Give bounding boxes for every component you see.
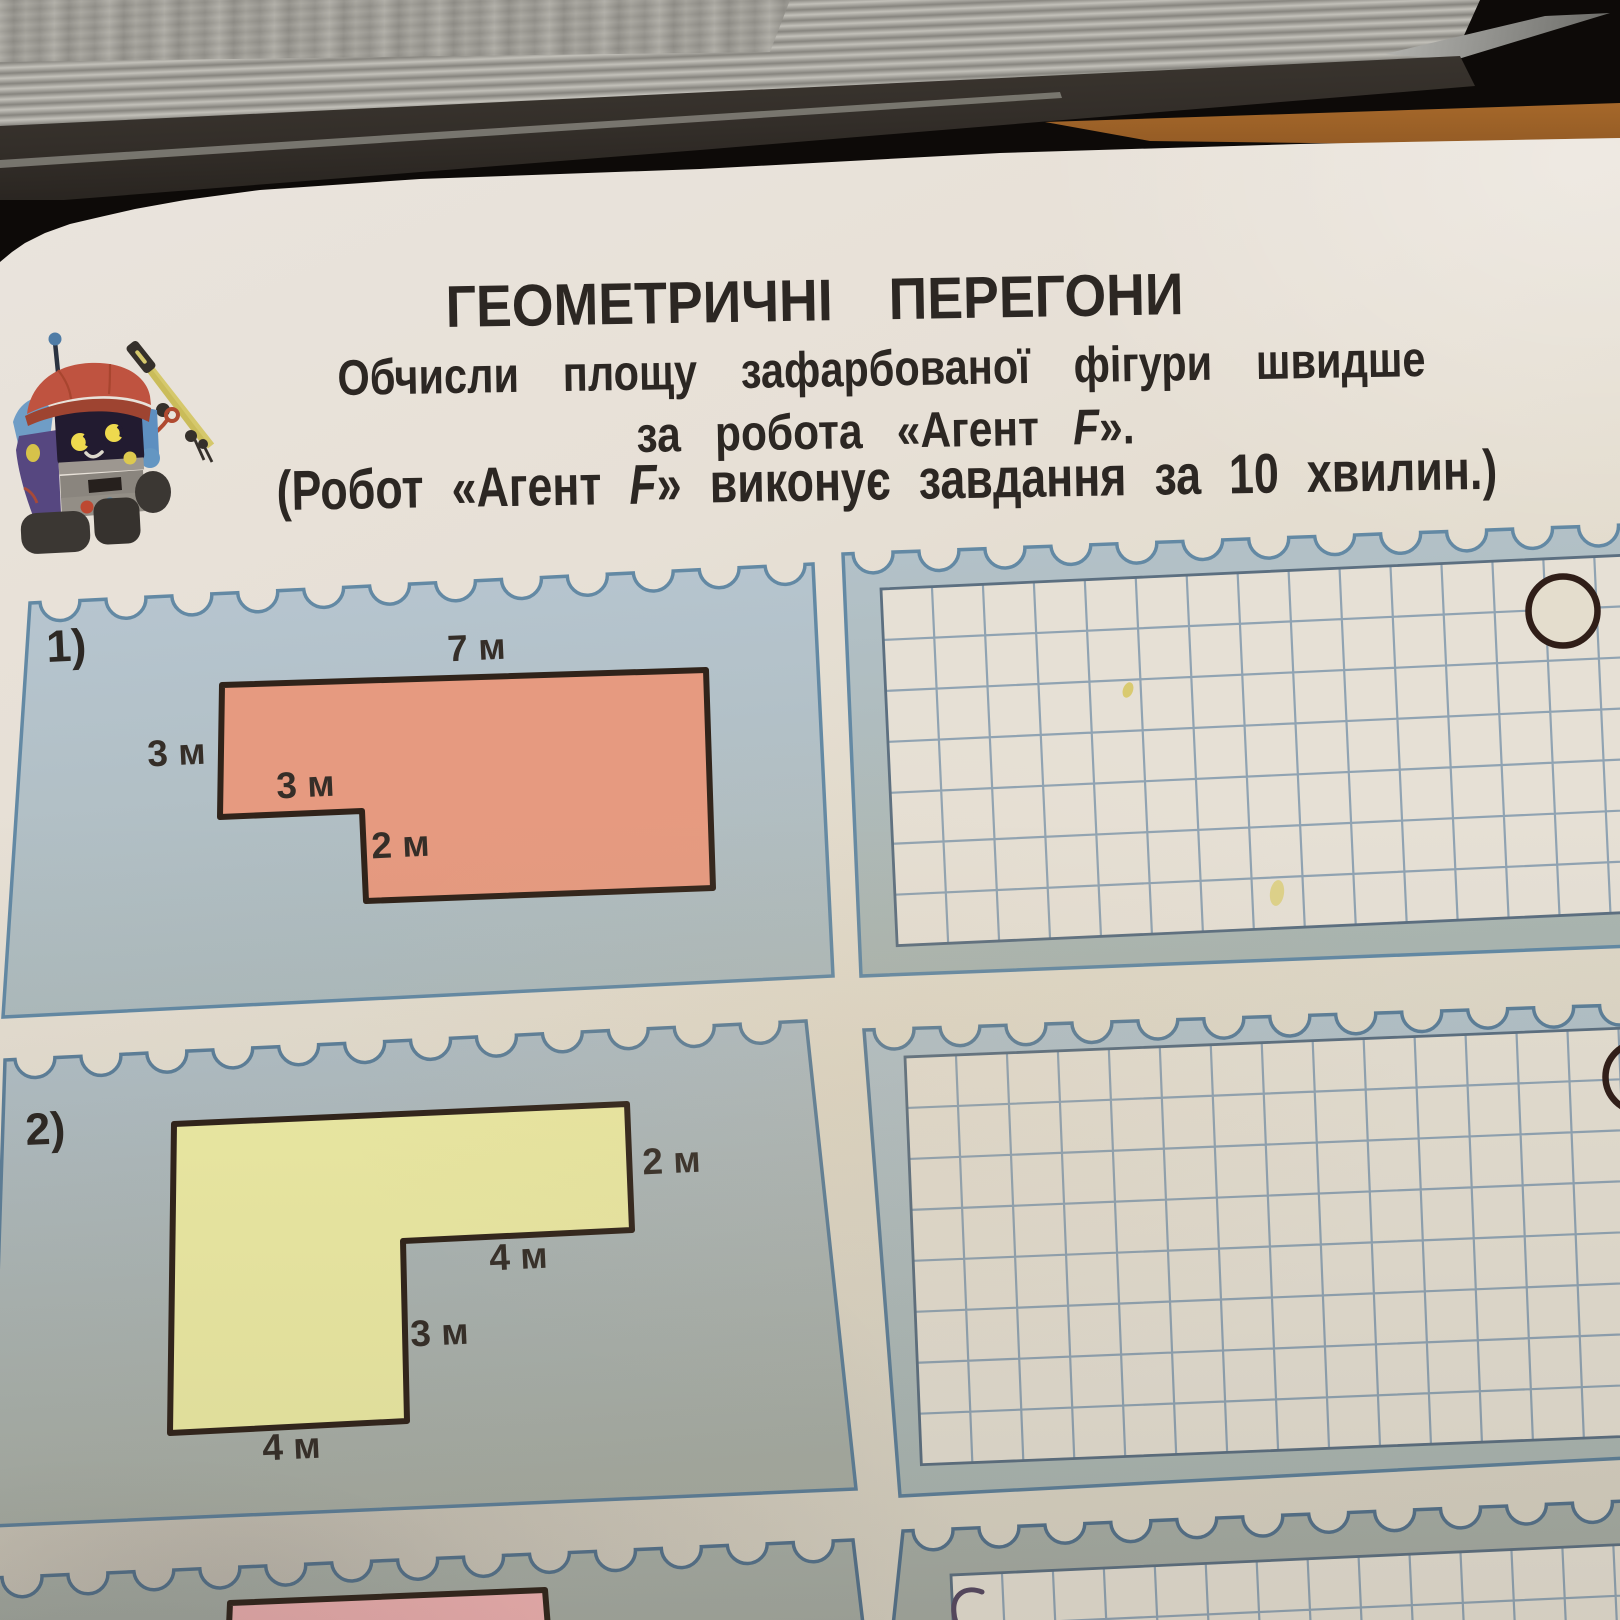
svg-text:3 м: 3 м <box>146 731 206 775</box>
svg-text:4 м: 4 м <box>261 1425 321 1469</box>
svg-text:3 м: 3 м <box>409 1311 469 1355</box>
svg-text:1): 1) <box>45 619 87 672</box>
svg-text:3 м: 3 м <box>275 763 335 807</box>
svg-text:2): 2) <box>24 1102 66 1155</box>
svg-text:2 м: 2 м <box>641 1139 701 1183</box>
svg-text:4 м: 4 м <box>488 1235 548 1279</box>
svg-text:7 м: 7 м <box>446 626 506 670</box>
svg-text:2 м: 2 м <box>370 823 430 867</box>
